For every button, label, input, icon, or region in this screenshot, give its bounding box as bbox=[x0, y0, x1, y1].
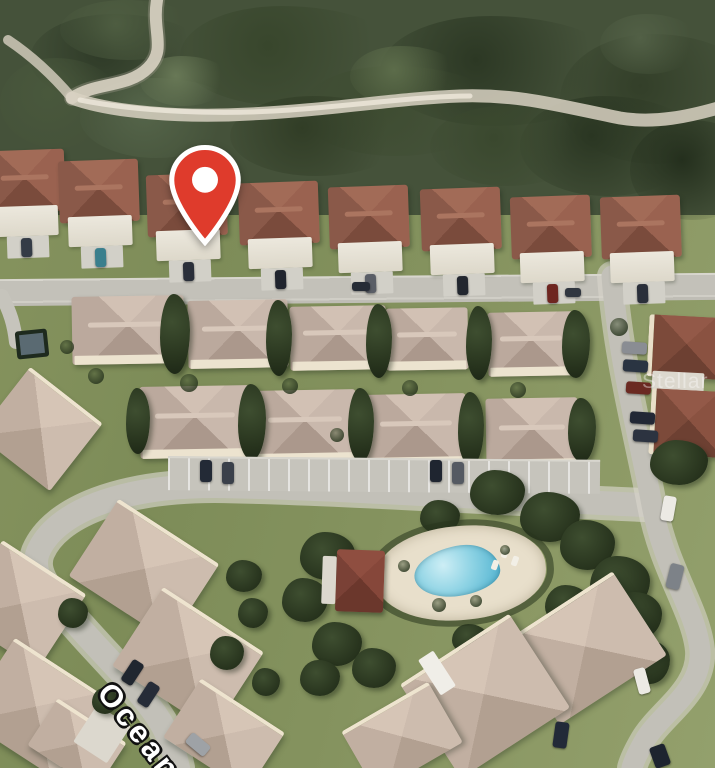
clubhouse-walkway bbox=[321, 556, 337, 604]
house-roof bbox=[420, 187, 502, 252]
parked-car bbox=[633, 429, 659, 443]
condo-building bbox=[253, 389, 356, 463]
parked-car bbox=[200, 460, 212, 482]
parked-car bbox=[452, 462, 464, 484]
house-body bbox=[248, 237, 313, 269]
bush bbox=[610, 318, 628, 336]
car-on-road bbox=[352, 282, 370, 291]
bush bbox=[60, 340, 74, 354]
house-roof bbox=[328, 185, 410, 250]
deck-bush bbox=[398, 560, 410, 572]
condo-building bbox=[139, 385, 250, 459]
map-pin-body bbox=[172, 148, 239, 243]
house bbox=[510, 195, 596, 328]
parked-car bbox=[630, 411, 656, 425]
parked-car bbox=[430, 460, 442, 482]
bush bbox=[510, 382, 526, 398]
house-body bbox=[68, 215, 133, 247]
map-pin-icon[interactable] bbox=[167, 144, 243, 246]
parked-car bbox=[622, 341, 648, 355]
house bbox=[238, 181, 324, 314]
car bbox=[275, 270, 287, 289]
bush bbox=[88, 368, 104, 384]
clubhouse-roof bbox=[335, 549, 385, 613]
house-roof bbox=[510, 195, 592, 260]
condo-building bbox=[365, 393, 466, 467]
house-roof bbox=[600, 195, 682, 260]
bush bbox=[402, 380, 418, 396]
satellite-map: Ocean Stellar MLS bbox=[0, 0, 715, 768]
bush bbox=[180, 374, 198, 392]
house-body bbox=[520, 251, 585, 283]
car bbox=[637, 284, 649, 303]
condo-building bbox=[385, 307, 468, 370]
house bbox=[600, 195, 686, 328]
house-roof bbox=[58, 159, 140, 224]
deck-bush bbox=[432, 598, 446, 612]
watermark-text: Stellar MLS bbox=[642, 370, 715, 394]
parked-car bbox=[222, 462, 234, 484]
house-body bbox=[610, 251, 675, 283]
deck-bush bbox=[500, 545, 510, 555]
house bbox=[420, 187, 506, 320]
car bbox=[457, 276, 469, 295]
house bbox=[58, 159, 144, 292]
bush bbox=[330, 428, 344, 442]
car bbox=[547, 284, 559, 303]
car bbox=[183, 262, 195, 281]
car bbox=[21, 238, 33, 257]
fenced-pond bbox=[15, 328, 50, 359]
car bbox=[95, 248, 107, 267]
bush bbox=[282, 378, 298, 394]
house-body bbox=[0, 205, 59, 237]
house-roof bbox=[238, 181, 320, 246]
house-body bbox=[338, 241, 403, 273]
deck-bush bbox=[470, 595, 482, 607]
house-body bbox=[430, 243, 495, 275]
house-roof bbox=[0, 149, 66, 214]
house bbox=[328, 185, 414, 318]
car-on-road bbox=[565, 288, 581, 297]
